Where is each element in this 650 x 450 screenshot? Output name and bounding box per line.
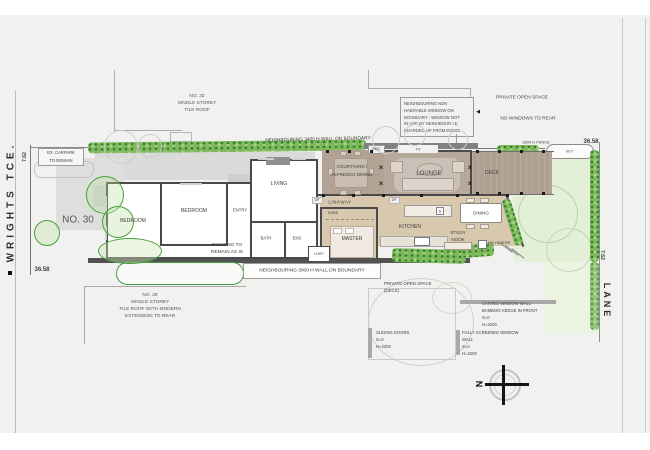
existing-note: EXISTING TO REMAIN AS IS	[187, 242, 267, 256]
neighbour28-outline	[84, 286, 85, 344]
internal-wall	[226, 184, 228, 246]
chair	[354, 190, 361, 195]
garden-bed	[546, 228, 592, 272]
neighbour32-rear-outline	[368, 70, 369, 88]
screened-line: WALL	[462, 336, 519, 343]
post	[542, 192, 545, 195]
master-wall-right	[376, 207, 378, 260]
sliding-line: H=2200	[376, 343, 409, 350]
study-line: STUDY	[438, 229, 478, 236]
lounge-deck-wall	[470, 152, 472, 194]
neighbour32-label: NO. 32 SINGLE STOREY TILE ROOF	[157, 93, 237, 114]
screened-wall-symbol	[456, 330, 460, 355]
north-arrow-cross-v	[502, 365, 505, 405]
window	[258, 158, 274, 160]
south-wall-note: NEIGHBOURING 3000 H WALL ON BOUNDARY	[259, 269, 364, 274]
room-label-bath: BATH	[261, 236, 272, 241]
neighbour28-label: NO. 28 SINGLE STOREY TILE ROOF WITH MODE…	[95, 292, 205, 320]
screened-line: FULLY SCREENED WINDOW	[462, 329, 519, 336]
canted-line: H=2200	[482, 321, 537, 328]
hedge-east-boundary	[590, 262, 599, 330]
room-label-study-nook: STUDY NOOK	[438, 229, 478, 243]
room-label-dining: DINING	[473, 211, 489, 216]
rear-boundary-line	[599, 142, 600, 342]
sliding-doors-note: SLIDING DOORS S=0 H=2200	[376, 329, 409, 350]
room-label-courtyard: COURTYARD / ALFRESCO DINING	[312, 163, 392, 178]
existing-note-line: REMAIN AS IS	[187, 249, 267, 256]
chair	[340, 190, 347, 195]
pos-deck-note: PRIVATE OPEN SPACE (DECK)	[384, 280, 432, 294]
pos-deck-line: PRIVATE OPEN SPACE	[384, 280, 432, 287]
neighbour-tree	[404, 124, 426, 146]
post	[476, 150, 479, 153]
chair	[340, 151, 347, 156]
neighbour28-line: TILE ROOF WITH MODERN	[95, 306, 205, 313]
chair	[466, 198, 475, 203]
kitchen-island	[404, 205, 452, 217]
room-label-master: MASTER	[342, 236, 363, 242]
operable-wall-icon: ✕	[467, 165, 472, 172]
pillow	[333, 228, 342, 234]
room-label-linkway: LINKWAY	[328, 200, 351, 205]
sofa	[402, 178, 454, 191]
window-note-line: BOUNDARY - WINDOW NOT	[404, 115, 473, 122]
master-wall-top	[320, 207, 378, 209]
courtyard-line: COURTYARD /	[312, 163, 392, 171]
operable-wall-icon: ✕	[378, 181, 383, 188]
dim-rear-width: 7.62	[599, 250, 605, 260]
canted-wall-note: CANTED WINDOW WALL BAMBOO HEDGE IN FRONT…	[482, 300, 537, 328]
post	[476, 192, 479, 195]
window-note-line: HABITABLE WINDOW ON	[404, 108, 473, 115]
chair	[354, 151, 361, 156]
study-desk	[444, 242, 472, 250]
hedge-south	[392, 248, 466, 264]
post	[506, 194, 509, 197]
survey-mark	[8, 271, 12, 275]
room-label-entry: ENTRY	[233, 208, 247, 213]
post	[520, 150, 523, 153]
neighbour32-line: TILE ROOF	[157, 107, 237, 114]
private-open-space-top: PRIVATE OPEN SPACE	[496, 96, 548, 101]
sink-label: S	[439, 209, 442, 214]
post	[542, 150, 545, 153]
room-label-lounge: LOUNGE	[416, 171, 441, 177]
site-number: NO. 30	[62, 215, 94, 226]
tree	[34, 220, 60, 246]
post	[382, 194, 385, 197]
screened-line: H=2200	[462, 350, 519, 357]
canted-line: S=0	[482, 314, 537, 321]
stove	[414, 237, 430, 246]
pillow	[345, 228, 354, 234]
courtyard-line: ALFRESCO DINING	[312, 171, 392, 179]
garden-bed-outline	[98, 238, 162, 264]
room-label-robe: ROBE	[328, 211, 338, 215]
deck-south-edge	[508, 194, 554, 195]
canted-line: CANTED WINDOW WALL	[482, 300, 537, 307]
sliding-line: SLIDING DOORS	[376, 329, 409, 336]
deck-floor	[472, 152, 552, 194]
hw-unit	[478, 240, 487, 249]
site-plan: EX. CARPARK TO REMAIN ✕ ✕ ✕ ✕	[0, 0, 650, 450]
no-windows-note: NO WINDOWS TO REAR	[500, 117, 555, 122]
room-label-ldry: LDRY	[314, 252, 324, 256]
leader-arrow-icon: ◀	[476, 109, 480, 115]
dim-front-width: 7.62	[22, 152, 28, 162]
sliding-door-symbol	[368, 328, 372, 358]
post	[498, 192, 501, 195]
carpark-note-box: EX. CARPARK TO REMAIN	[38, 148, 84, 166]
neighbour28-line: EXTENSION TO REAR	[95, 313, 205, 320]
hw-heater-label: HW HEATER	[488, 241, 511, 245]
tv-label: TV	[415, 147, 420, 152]
dim-rear-depth: 36.58	[583, 139, 598, 145]
neighbour32-line: SINGLE STOREY	[157, 100, 237, 107]
room-label-bedroom1: BEDROOM	[120, 218, 146, 224]
neighbour32-outline	[114, 70, 115, 131]
chair	[480, 198, 489, 203]
fence-label: 1800 H FENCE	[522, 140, 550, 145]
post	[456, 194, 459, 197]
neighbour32-rear-outline	[470, 88, 471, 97]
room-label-bedroom2: BEDROOM	[181, 208, 207, 214]
water-tank-label: W.T.	[566, 149, 574, 154]
window	[292, 158, 306, 160]
room-label-ens: ENS	[293, 236, 302, 241]
post	[498, 150, 501, 153]
bbq-label: BBQ	[372, 147, 380, 151]
lane-edge-line	[645, 18, 646, 433]
north-label: N	[474, 381, 484, 388]
operable-wall-icon: ✕	[467, 181, 472, 188]
room-label-kitchen: KITCHEN	[399, 224, 421, 230]
chair	[480, 224, 489, 229]
street-name-left: WRIGHTS TCE.	[6, 142, 17, 263]
post	[352, 194, 355, 197]
post	[326, 150, 329, 153]
neighbour-tree	[104, 130, 138, 164]
front-boundary-line	[30, 145, 31, 275]
screened-wall-note: FULLY SCREENED WINDOW WALL S=0 H=2200	[462, 329, 519, 357]
room-label-living: LIVING	[271, 181, 287, 187]
existing-note-line: EXISTING TO	[187, 242, 267, 249]
canted-line: BAMBOO HEDGE IN FRONT	[482, 307, 537, 314]
sliding-line: S=0	[376, 336, 409, 343]
neighbour28-line: SINGLE STOREY	[95, 299, 205, 306]
neighbour-garden-bed-outline	[116, 262, 244, 285]
post	[348, 150, 351, 153]
carpark-note-line: EX. CARPARK	[39, 149, 83, 157]
north-arrow-cross-h	[485, 383, 529, 386]
room-label-deck: DECK	[485, 170, 499, 176]
bath-ens-wall	[284, 223, 286, 257]
post	[420, 194, 423, 197]
post	[520, 192, 523, 195]
pos-deck-line: (DECK)	[384, 287, 432, 294]
window	[180, 183, 202, 185]
neighbour28-outline	[84, 286, 246, 287]
street-name-lane: LANE	[602, 283, 612, 320]
armchair	[452, 161, 465, 173]
lane-edge-line	[622, 18, 623, 433]
window-note-line: NEIGHBOURING NON	[404, 101, 473, 108]
internal-wall	[160, 182, 162, 246]
neighbour-tree	[138, 134, 162, 158]
study-line: NOOK	[438, 236, 478, 243]
neighbour32-line: NO. 32	[157, 93, 237, 100]
hedge-east-boundary	[590, 150, 599, 262]
carpark-note-line: TO REMAIN	[39, 157, 83, 165]
robe-line	[326, 219, 374, 220]
neighbour32-rear-outline	[368, 88, 470, 89]
neighbour-tree	[448, 130, 468, 150]
downpipe-label: DP	[315, 198, 320, 202]
neighbour28-line: NO. 28	[95, 292, 205, 299]
dim-front-depth: 36.58	[34, 267, 49, 273]
downpipe-label: DP	[392, 198, 397, 202]
screened-line: S=0	[462, 343, 519, 350]
